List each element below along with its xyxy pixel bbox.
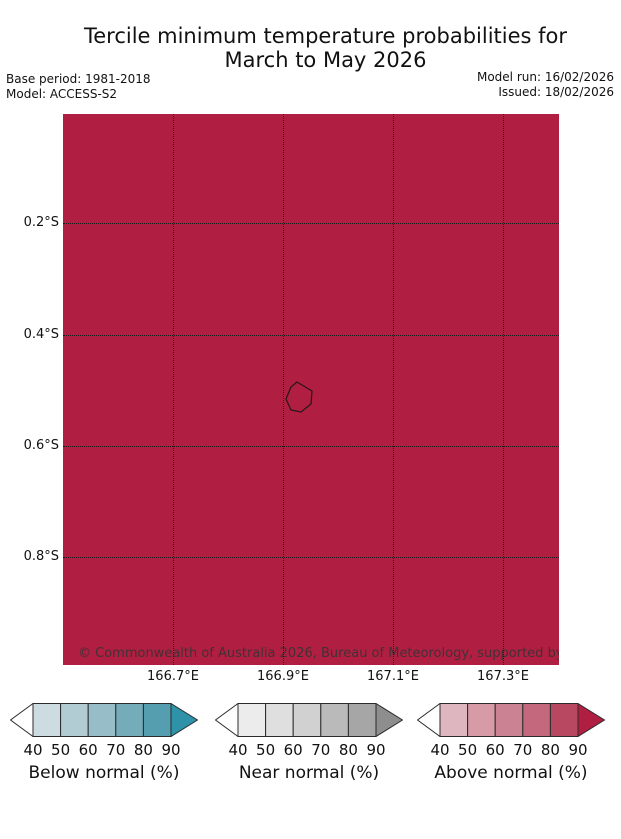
colorbar-arrow-left — [216, 704, 239, 737]
colorbar-tick-row: 405060708090 — [10, 741, 198, 759]
colorbar-segment — [88, 704, 116, 737]
colorbar-segment — [293, 704, 321, 737]
colorbar-segment — [143, 704, 171, 737]
colorbar-tick-label: 50 — [51, 741, 70, 759]
colorbar-arrow-right — [376, 704, 403, 737]
colorbar-below-normal-bar — [10, 703, 198, 737]
colorbar-segment — [440, 704, 468, 737]
chart-title-line1: Tercile minimum temperature probabilitie… — [30, 24, 621, 48]
colorbar-segment — [266, 704, 294, 737]
meta-right: Model run: 16/02/2026 Issued: 18/02/2026 — [477, 70, 614, 99]
x-tick-label: 167.1°E — [367, 669, 419, 684]
colorbar-tick-label: 40 — [430, 741, 449, 759]
colorbar-tick-label: 60 — [79, 741, 98, 759]
colorbar-arrow-right — [171, 704, 198, 737]
colorbar-tick-label: 90 — [366, 741, 385, 759]
colorbar-segment — [550, 704, 578, 737]
y-tick-label: 0.8°S — [0, 549, 59, 565]
colorbar-below-normal: 405060708090Below normal (%) — [10, 703, 198, 793]
colorbar-title-above-normal: Above normal (%) — [417, 763, 605, 783]
map-plot: © Commonwealth of Australia 2026, Bureau… — [63, 114, 559, 665]
island-outline-svg — [63, 114, 559, 665]
meta-left: Base period: 1981-2018 Model: ACCESS-S2 — [6, 72, 151, 101]
colorbar-segment — [33, 704, 61, 737]
colorbar-segment — [116, 704, 144, 737]
issued-text: Issued: 18/02/2026 — [477, 85, 614, 100]
colorbar-segment — [238, 704, 266, 737]
colorbar-segment — [61, 704, 89, 737]
colorbar-above-normal: 405060708090Above normal (%) — [417, 703, 605, 793]
colorbar-segment — [468, 704, 496, 737]
x-tick-label: 166.9°E — [257, 669, 309, 684]
colorbar-arrow-left — [418, 704, 441, 737]
x-tick-label: 167.3°E — [477, 669, 529, 684]
base-period-text: Base period: 1981-2018 — [6, 72, 151, 87]
colorbar-near-normal: 405060708090Near normal (%) — [215, 703, 403, 793]
colorbar-tick-label: 50 — [458, 741, 477, 759]
colorbar-title-below-normal: Below normal (%) — [10, 763, 198, 783]
x-tick-label: 166.7°E — [147, 669, 199, 684]
colorbar-tick-label: 40 — [23, 741, 42, 759]
island-outline — [286, 382, 312, 412]
chart-title: Tercile minimum temperature probabilitie… — [30, 24, 621, 72]
y-tick-label: 0.4°S — [0, 327, 59, 343]
colorbar-tick-label: 80 — [134, 741, 153, 759]
model-run-text: Model run: 16/02/2026 — [477, 70, 614, 85]
colorbar-arrow-right — [578, 704, 605, 737]
colorbar-segment — [348, 704, 376, 737]
colorbar-arrow-left — [11, 704, 34, 737]
colorbar-title-near-normal: Near normal (%) — [215, 763, 403, 783]
colorbar-near-normal-bar — [215, 703, 403, 737]
colorbar-tick-label: 70 — [513, 741, 532, 759]
figure: Tercile minimum temperature probabilitie… — [0, 0, 621, 839]
colorbar-segment — [321, 704, 349, 737]
colorbar-tick-label: 60 — [486, 741, 505, 759]
y-tick-label: 0.2°S — [0, 215, 59, 231]
colorbar-tick-label: 90 — [568, 741, 587, 759]
colorbar-tick-label: 90 — [161, 741, 180, 759]
colorbar-tick-label: 70 — [311, 741, 330, 759]
colorbar-tick-row: 405060708090 — [417, 741, 605, 759]
colorbar-above-normal-bar — [417, 703, 605, 737]
colorbar-segment — [523, 704, 551, 737]
model-text: Model: ACCESS-S2 — [6, 87, 151, 102]
colorbar-tick-label: 80 — [541, 741, 560, 759]
chart-title-line2: March to May 2026 — [30, 48, 621, 72]
colorbar-tick-label: 80 — [339, 741, 358, 759]
colorbar-tick-label: 70 — [106, 741, 125, 759]
colorbar-tick-label: 40 — [228, 741, 247, 759]
colorbar-tick-label: 50 — [256, 741, 275, 759]
colorbar-segment — [495, 704, 523, 737]
y-tick-label: 0.6°S — [0, 438, 59, 454]
colorbar-tick-label: 60 — [284, 741, 303, 759]
colorbar-tick-row: 405060708090 — [215, 741, 403, 759]
